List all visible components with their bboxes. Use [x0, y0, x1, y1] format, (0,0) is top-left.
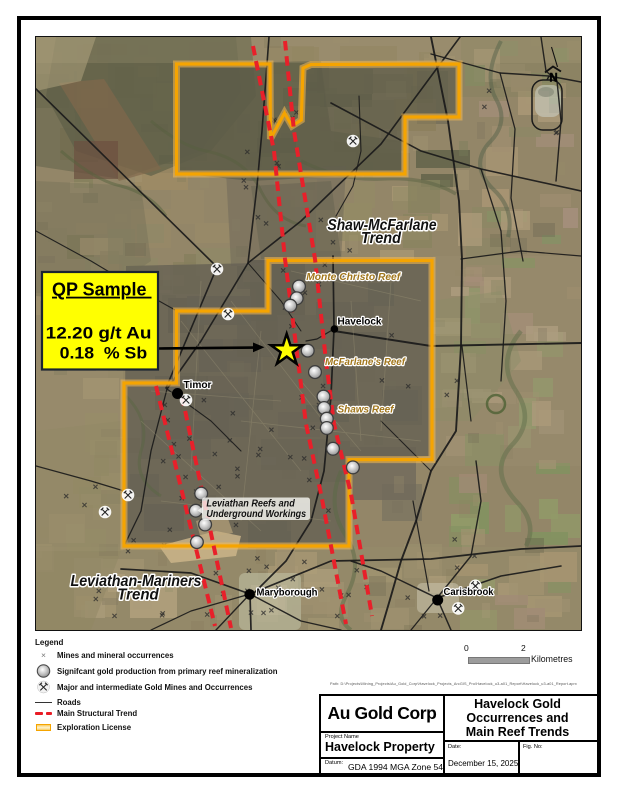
svg-text:QP Sample: QP Sample — [52, 280, 152, 300]
svg-text:McFarlane's Reef: McFarlane's Reef — [325, 356, 406, 368]
svg-text:Leviathan Reefs and: Leviathan Reefs and — [206, 499, 295, 510]
svg-text:12.20 g/t Au: 12.20 g/t Au — [46, 323, 152, 342]
svg-text:Maryborough: Maryborough — [257, 588, 318, 599]
svg-text:Trend: Trend — [361, 230, 401, 247]
svg-text:0.18 % Sb: 0.18 % Sb — [60, 344, 148, 363]
svg-text:N: N — [549, 73, 557, 85]
svg-text:Carisbrook: Carisbrook — [444, 587, 494, 598]
svg-text:Underground Workings: Underground Workings — [206, 509, 306, 520]
svg-text:Monte Christo Reef: Monte Christo Reef — [306, 271, 401, 283]
svg-text:Trend: Trend — [117, 587, 159, 604]
svg-text:Shaws Reef: Shaws Reef — [338, 404, 395, 416]
svg-text:Havelock: Havelock — [338, 317, 382, 328]
svg-text:Timor: Timor — [184, 380, 212, 391]
